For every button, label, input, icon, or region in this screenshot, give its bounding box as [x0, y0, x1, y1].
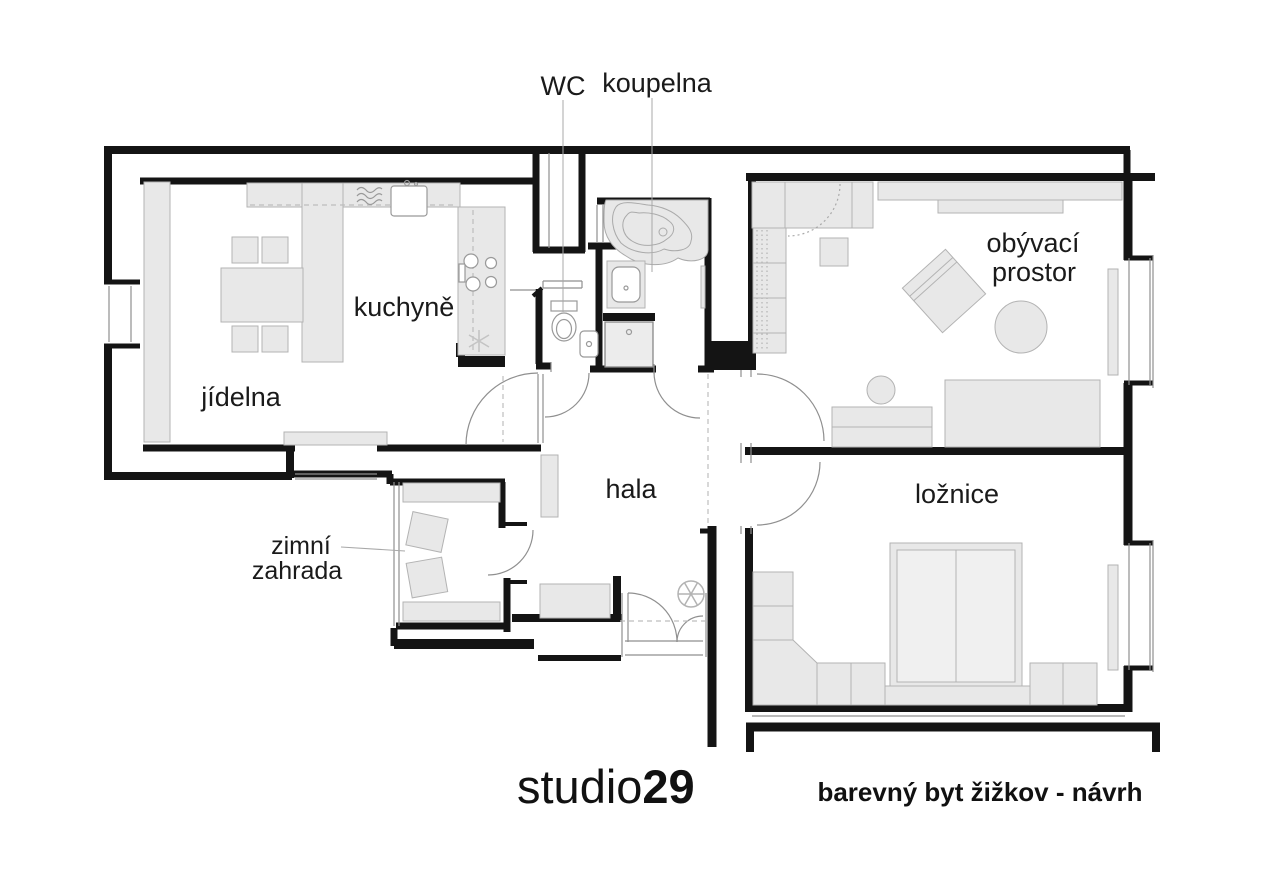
room-label-winter-garden-1: zimní [271, 532, 331, 560]
kitchen-tall-cabinet [302, 183, 343, 362]
room-label-bedroom: ložnice [915, 479, 999, 509]
chair [406, 512, 448, 553]
wc-fixtures [551, 301, 598, 357]
bed-foot-board [885, 686, 1030, 705]
washing-machine-icon [605, 322, 653, 367]
bathtub-icon [604, 200, 708, 265]
kitchen-counter-top [247, 183, 460, 207]
annotation-wc: WC [541, 71, 586, 101]
corner-unit [753, 640, 817, 705]
bathroom-fixtures [604, 200, 708, 367]
studio-logo-bold: 29 [642, 760, 694, 813]
room-label-dining: jídelna [200, 382, 282, 412]
bench [403, 483, 500, 502]
armchair [902, 249, 985, 332]
radiator [1108, 565, 1118, 670]
shelf [938, 200, 1063, 213]
ceiling-light-icon [678, 581, 704, 607]
side-cabinet [820, 238, 848, 266]
floor-plan: WC koupelna kuchyně jídelna hala obývací… [0, 0, 1280, 881]
side-table [867, 376, 895, 404]
room-label-living-2: prostor [992, 257, 1076, 287]
chair [232, 326, 258, 352]
annotation-bathroom: koupelna [602, 68, 713, 98]
bedroom-furniture [753, 543, 1118, 705]
room-label-living-1: obývací [986, 228, 1080, 258]
washbasin-icon [607, 261, 645, 308]
hall-cabinet [541, 455, 558, 517]
floor-plan-page: WC koupelna kuchyně jídelna hala obývací… [0, 0, 1280, 881]
round-rug [995, 301, 1047, 353]
hall-mat [540, 584, 610, 618]
studio-logo: studio29 [517, 760, 695, 813]
small-sink-icon [580, 331, 598, 357]
dining-table [221, 268, 303, 322]
room-label-winter-garden-2: zahrada [252, 557, 342, 585]
sofa [945, 380, 1100, 447]
chair [232, 237, 258, 263]
winter-garden-furniture [403, 483, 500, 621]
room-label-kitchen: kuchyně [354, 292, 455, 322]
living-room-furniture [752, 182, 1122, 447]
toilet-icon [551, 301, 577, 341]
doorway-sill [284, 432, 387, 445]
room-label-hall: hala [605, 474, 657, 504]
shelf [878, 182, 1122, 200]
towel-rail [701, 266, 705, 308]
chair [406, 557, 448, 598]
wardrobe [752, 182, 873, 228]
chair [262, 326, 288, 352]
radiator [1108, 269, 1118, 375]
cabinet-column [753, 228, 786, 353]
bench [403, 602, 500, 621]
radiator-strip [144, 182, 170, 442]
studio-logo-regular: studio [517, 760, 642, 813]
kitchen-sink-icon [391, 181, 427, 217]
project-title: barevný byt žižkov - návrh [817, 777, 1142, 807]
chair [262, 237, 288, 263]
